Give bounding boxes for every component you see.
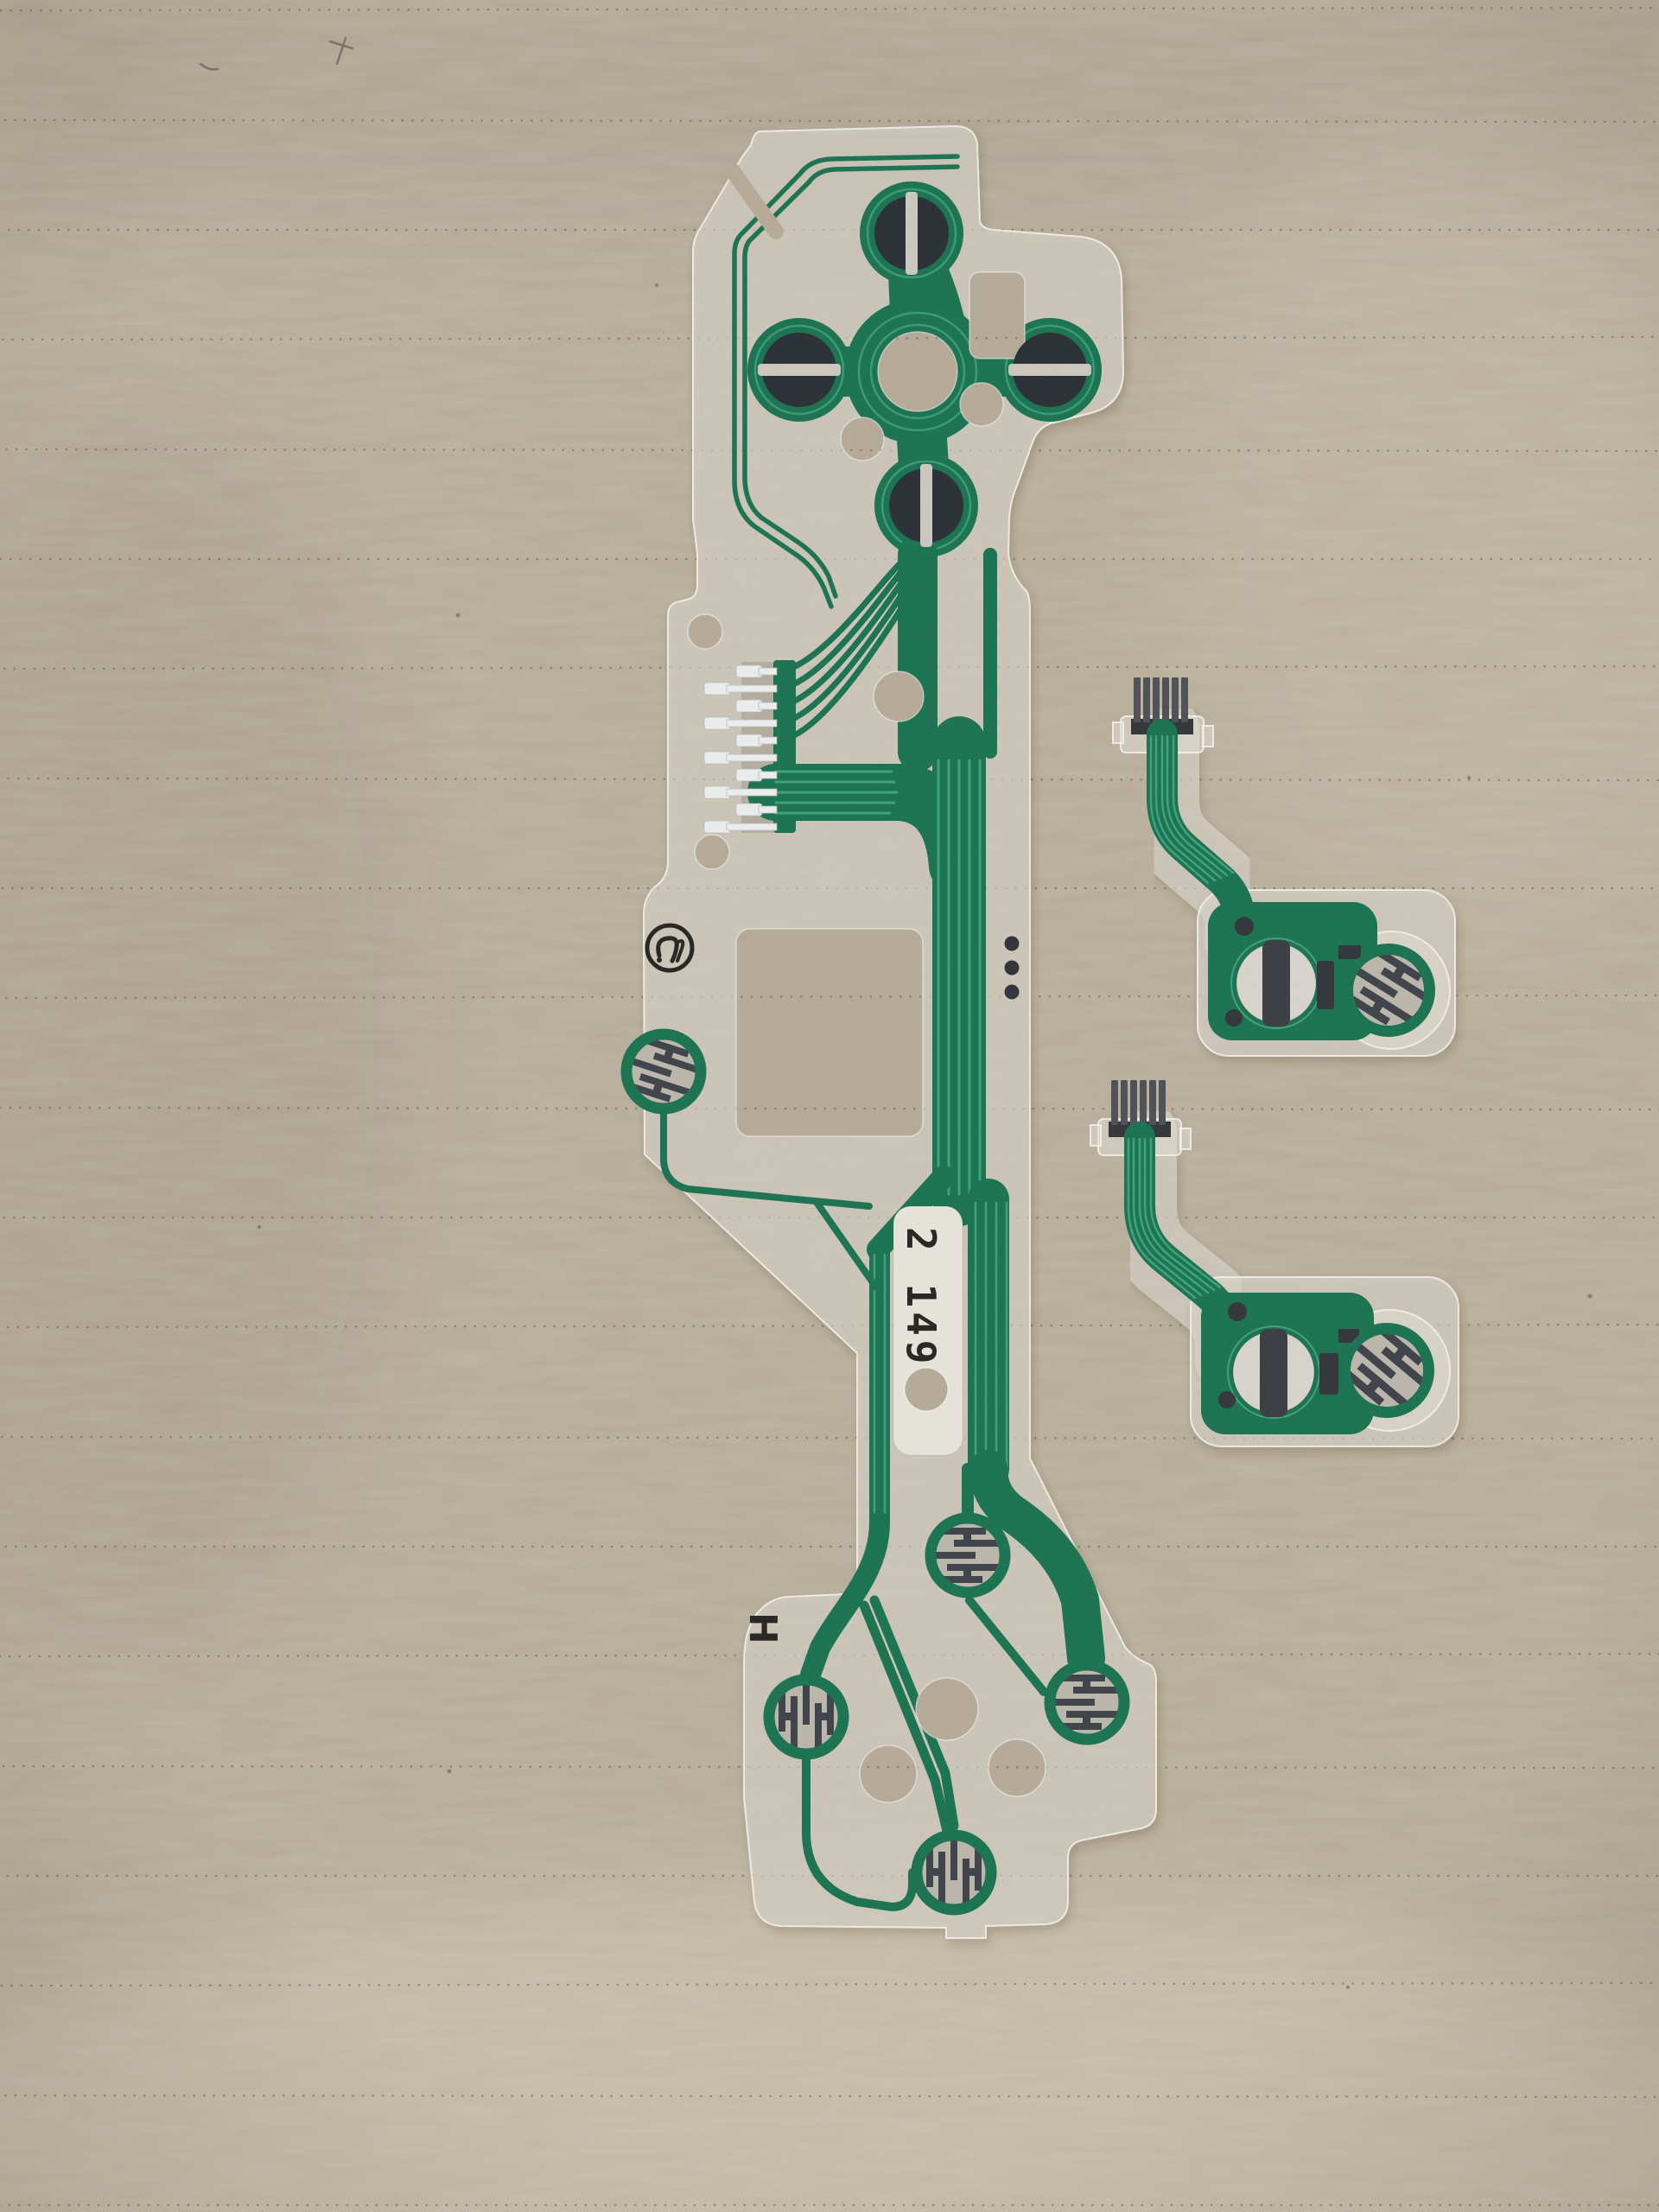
flex-circuit-photo: 2 149 H bbox=[0, 0, 1659, 2212]
photo-canvas: 2 149 H bbox=[0, 0, 1659, 2212]
vignette bbox=[0, 0, 1659, 2212]
